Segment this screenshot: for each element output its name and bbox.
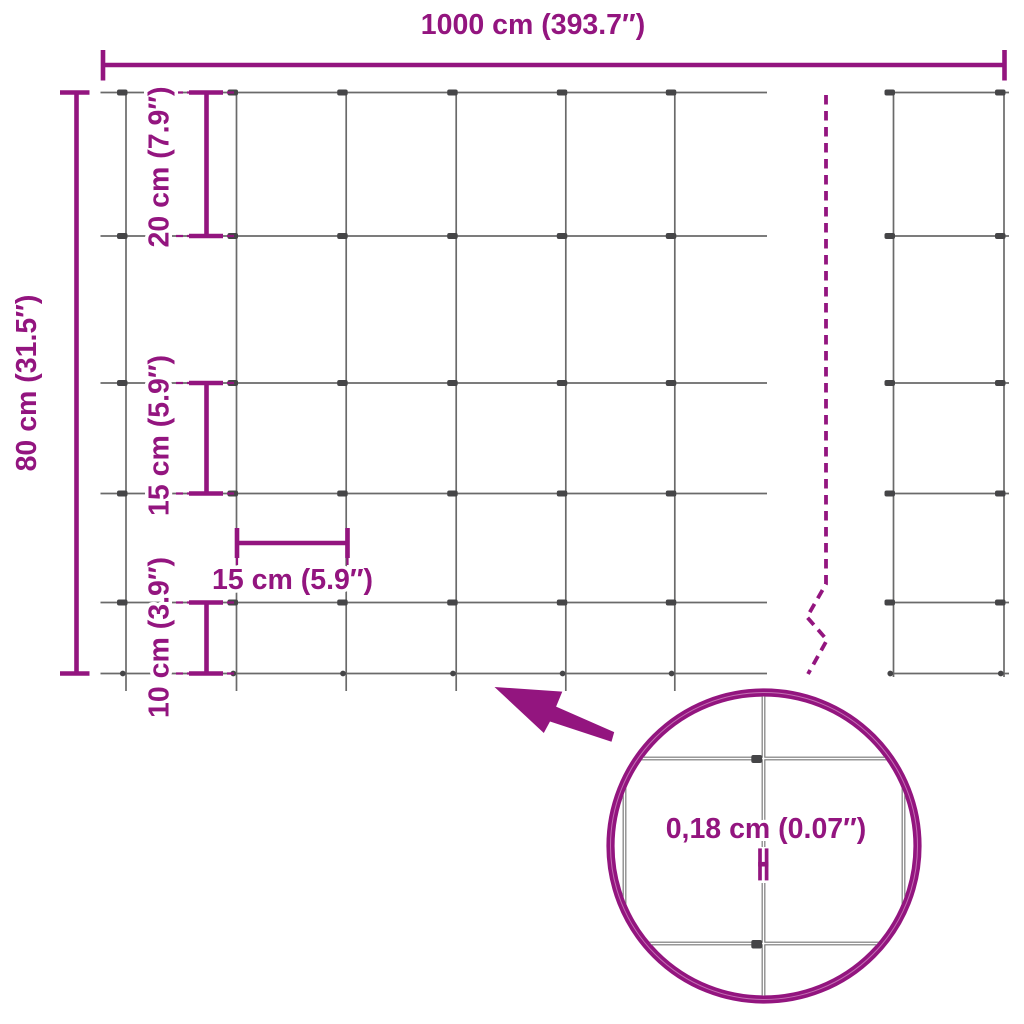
svg-text:20 cm (7.9″): 20 cm (7.9″) — [144, 87, 176, 248]
svg-text:80 cm (31.5″): 80 cm (31.5″) — [11, 295, 43, 472]
svg-text:15 cm (5.9″): 15 cm (5.9″) — [144, 355, 176, 516]
svg-text:10 cm (3.9″): 10 cm (3.9″) — [144, 557, 176, 718]
svg-text:0,18 cm (0.07″): 0,18 cm (0.07″) — [666, 813, 867, 845]
svg-text:1000 cm (393.7″): 1000 cm (393.7″) — [421, 9, 645, 41]
svg-text:15 cm (5.9″): 15 cm (5.9″) — [212, 564, 373, 596]
